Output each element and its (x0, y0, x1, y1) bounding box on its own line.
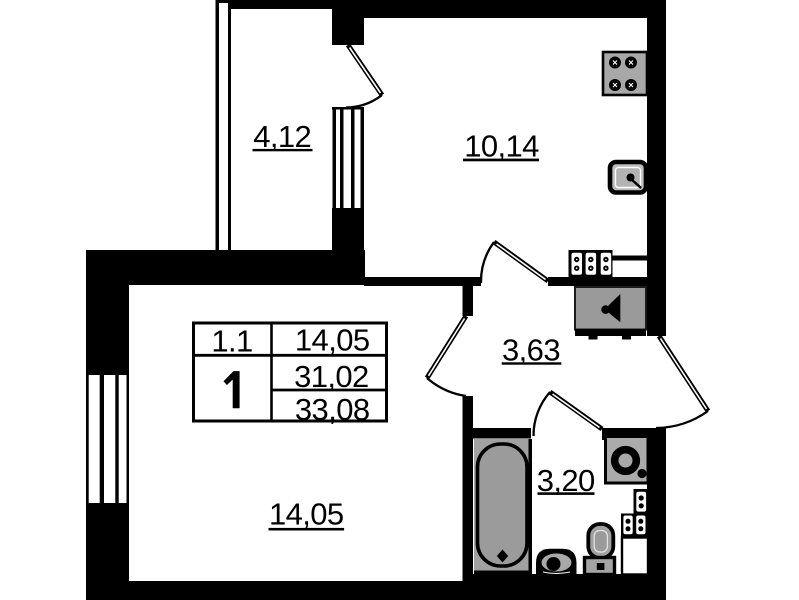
svg-text:14,05: 14,05 (269, 497, 344, 532)
svg-text:14,05: 14,05 (295, 323, 370, 358)
svg-text:10,14: 10,14 (464, 129, 539, 164)
svg-text:1.1: 1.1 (211, 323, 252, 358)
svg-text:31,02: 31,02 (294, 359, 369, 394)
svg-text:33,08: 33,08 (295, 392, 370, 427)
